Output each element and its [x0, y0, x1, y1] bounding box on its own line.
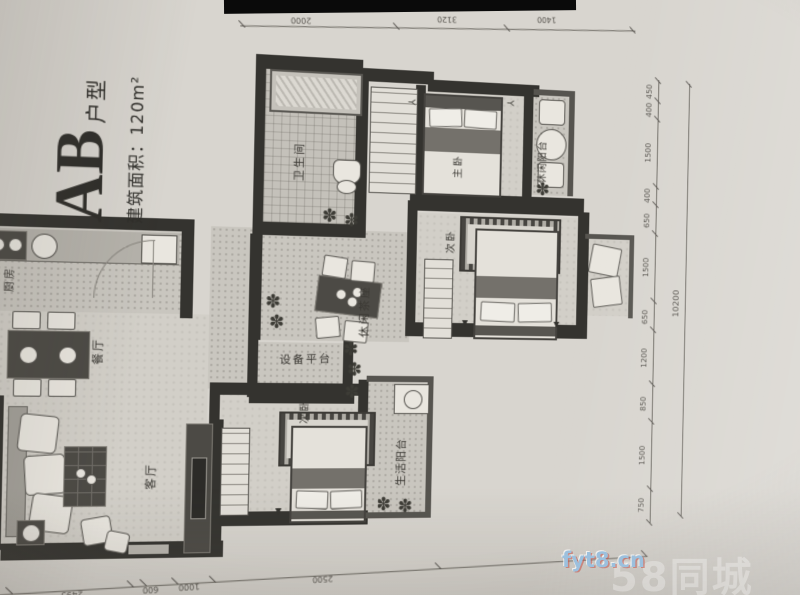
equipment-platform-label: 设备平台	[279, 350, 332, 367]
balcony-stool	[539, 99, 566, 126]
right-dim-value: 400	[643, 188, 652, 203]
burner	[0, 237, 5, 251]
title-block: AB 户型 建筑面积：120m²	[47, 6, 150, 224]
balcony-wall	[628, 235, 634, 318]
right-dim-value: 1500	[644, 143, 653, 163]
bathroom-label: 卫生间	[290, 141, 307, 181]
top-dim-value: 3120	[437, 15, 457, 24]
washing-machine	[394, 384, 430, 414]
floor-plan: 卫生间 Y Y 主卧 休闲阳台 ✽ 次卧 ▲ ▲	[0, 0, 778, 595]
plant-icon: ✽	[265, 293, 281, 312]
bottom-dim-value: 2500	[312, 574, 333, 585]
right-total-dim-line	[681, 84, 690, 517]
ottoman	[103, 530, 131, 555]
bedroom3-bed	[289, 426, 367, 524]
dining-table	[7, 330, 91, 379]
toilet-bowl	[337, 180, 357, 195]
plant-icon: ✽	[376, 496, 391, 514]
chair	[47, 312, 76, 330]
top-dim-value: 2000	[290, 16, 311, 25]
master-bedroom-label: 主卧	[449, 154, 464, 178]
hanger-icon: Y	[406, 99, 417, 106]
plant-icon: ✽	[347, 361, 362, 379]
plant-icon: ✽	[344, 384, 359, 402]
wall	[576, 212, 590, 339]
site-watermark: fyt8.cn	[562, 548, 645, 572]
right-dim-value: 1500	[642, 257, 651, 277]
balcony-chair	[590, 275, 623, 308]
pillow	[429, 108, 463, 127]
tv-cabinet	[183, 423, 213, 553]
pillow	[295, 490, 328, 509]
cup	[86, 474, 97, 485]
window	[128, 544, 168, 554]
bottom-dim-value: 2495	[61, 589, 83, 595]
wall	[180, 219, 195, 318]
chair	[48, 379, 77, 397]
right-dim-value: 750	[637, 498, 646, 513]
bedroom3-label: 次卧	[295, 399, 311, 423]
right-total-value: 10200	[672, 290, 682, 318]
tv	[190, 457, 207, 519]
footboard	[291, 510, 364, 519]
right-dim-value: 1200	[640, 348, 649, 368]
wall	[248, 233, 263, 339]
desk	[220, 428, 251, 516]
chair	[315, 316, 341, 339]
right-dim-value: 850	[639, 396, 648, 411]
master-bed	[422, 93, 503, 197]
washer-door	[404, 390, 423, 409]
right-dim-value: 1500	[638, 446, 647, 466]
footboard	[475, 325, 555, 336]
bedroom2-label: 次卧	[442, 229, 457, 253]
leisure-seating-label: 休闲茶座	[356, 285, 373, 338]
right-dim-value: 650	[643, 213, 652, 228]
door-swing-mark: ▲	[553, 321, 559, 329]
plan-type-suffix: 户型	[79, 77, 111, 124]
living-label: 客厅	[141, 463, 159, 490]
building-area-text: 建筑面积：120m²	[120, 10, 150, 224]
chair	[350, 260, 376, 283]
plate	[58, 346, 77, 364]
kitchen-label: 厨房	[0, 266, 17, 292]
dim-tick	[238, 20, 245, 28]
right-dim-value: 450	[645, 84, 654, 99]
cup	[75, 468, 86, 479]
side-table	[16, 520, 45, 546]
plant-icon: ✽	[343, 341, 358, 359]
bottom-dim-value: 600	[142, 585, 158, 595]
bedroom2-bed	[473, 228, 559, 340]
top-dim-line	[240, 25, 635, 31]
bowl	[335, 288, 347, 300]
door-swing-mark: ▲	[462, 319, 468, 327]
pillow	[480, 301, 515, 323]
burner	[8, 238, 23, 252]
dining-label: 餐厅	[89, 337, 107, 364]
blanket	[476, 276, 556, 299]
desk	[423, 259, 454, 339]
blanket	[425, 127, 501, 154]
plant-icon: ✽	[322, 207, 338, 226]
lamp	[22, 524, 41, 542]
pillow	[464, 109, 498, 130]
dim-tick	[393, 23, 400, 30]
chair	[13, 379, 42, 397]
plant-icon: ✽	[535, 181, 550, 199]
leisure-balcony-label: 休闲阳台	[534, 140, 549, 184]
stove	[0, 230, 27, 261]
right-dim-value: 650	[641, 310, 650, 325]
door-swing-mark: ▲	[275, 507, 281, 515]
right-dim-value: 400	[645, 102, 654, 117]
blanket	[292, 468, 365, 489]
chair	[321, 254, 348, 279]
balcony-chair	[588, 243, 622, 278]
pillow	[518, 303, 552, 323]
plate	[19, 346, 38, 364]
pillow	[330, 490, 362, 510]
coffee-table	[63, 446, 107, 507]
top-dim-value: 1400	[537, 15, 556, 24]
sofa-cushion	[16, 413, 60, 455]
balcony-wall	[367, 376, 434, 383]
life-balcony-label: 生活阳台	[392, 438, 409, 486]
floor-plan-photo: 卫生间 Y Y 主卧 休闲阳台 ✽ 次卧 ▲ ▲	[0, 0, 800, 595]
balcony-wall	[567, 91, 575, 196]
hanger-icon: Y	[504, 100, 515, 107]
plant-icon: ✽	[397, 498, 412, 516]
bathtub	[269, 69, 363, 116]
chair	[12, 311, 41, 329]
plan-type-title: AB	[47, 128, 111, 223]
sofa-cushion	[23, 453, 66, 496]
bottom-dim-value: 1000	[178, 582, 200, 593]
plant-icon: ✽	[344, 212, 359, 231]
plant-icon: ✽	[269, 314, 285, 333]
